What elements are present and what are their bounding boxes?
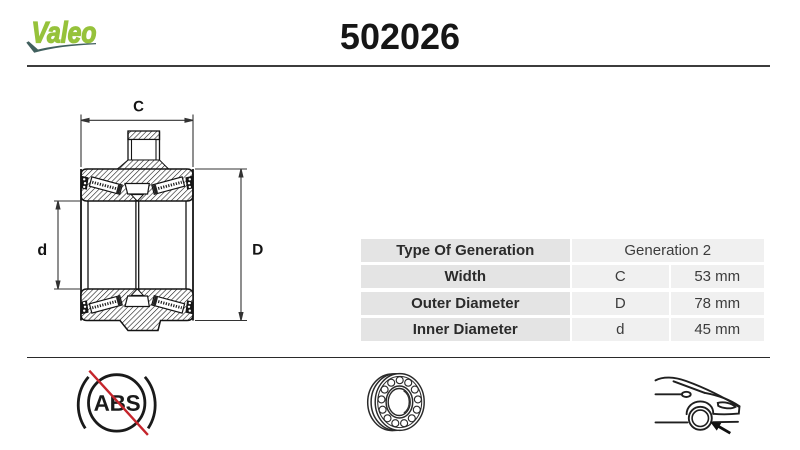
svg-text:D: D (252, 242, 263, 259)
svg-text:C: C (133, 98, 144, 115)
svg-text:d: d (37, 242, 47, 259)
svg-text:ABS: ABS (94, 391, 141, 416)
